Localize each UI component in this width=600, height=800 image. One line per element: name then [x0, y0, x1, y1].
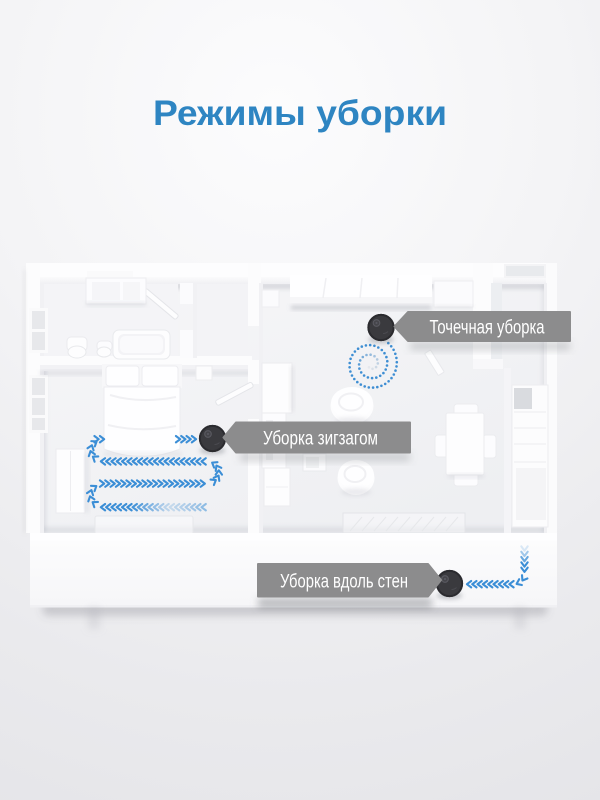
svg-text:Уборка вдоль стен: Уборка вдоль стен — [280, 572, 408, 593]
svg-text:Уборка зигзагом: Уборка зигзагом — [263, 429, 378, 450]
svg-text:Режимы уборки: Режимы уборки — [153, 93, 447, 133]
svg-text:Точечная уборка: Точечная уборка — [430, 318, 545, 339]
